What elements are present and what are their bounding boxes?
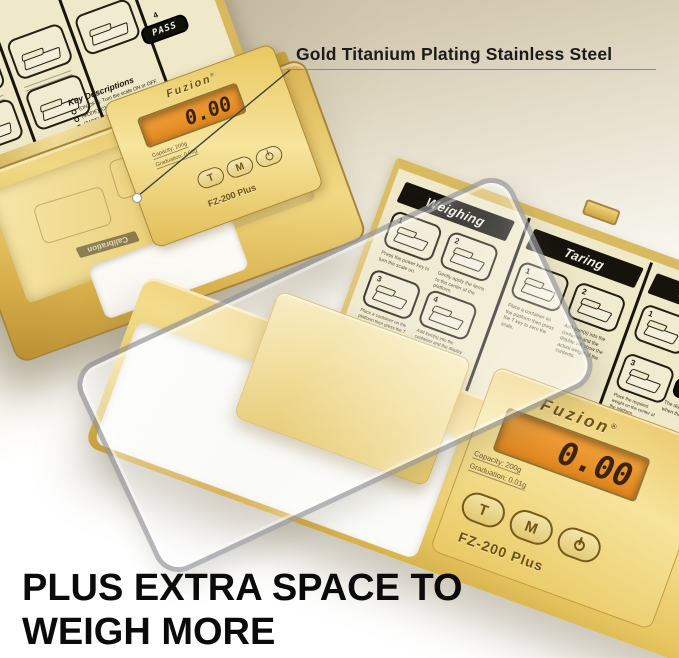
scale-diagram-icon [643,324,679,344]
power-key-icon [71,109,77,115]
power-icon [572,538,586,552]
annotation-underline [286,69,656,70]
reflection-card [32,186,113,245]
scale-diagram-icon [92,22,129,46]
scale-diagram-icon [576,302,612,322]
power-button [553,523,605,566]
caption-line-2: WEIGH MORE [22,610,463,654]
step-card: 1 [632,303,679,356]
pass-step-number: 4 [152,10,159,20]
step-card [73,0,142,57]
registered-mark: ® [210,72,217,79]
caption-line-1: PLUS EXTRA SPACE TO [22,566,463,610]
scale-diagram-icon [0,122,12,146]
mode-button: M [505,506,557,549]
latch [582,199,621,226]
product-image: 4 PASS Key Descriptions (ON/OFF): Turn t… [0,0,679,658]
registered-mark: ® [610,421,621,432]
scale-diagram-icon [24,47,61,71]
tare-button: T [458,488,510,531]
scale-diagram-icon [625,373,661,393]
marketing-caption: PLUS EXTRA SPACE TO WEIGH MORE [22,566,463,654]
mode-key-icon [74,116,80,122]
annotation-label: Gold Titanium Plating Stainless Steel [296,44,612,65]
pass-display: PASS [139,13,190,46]
